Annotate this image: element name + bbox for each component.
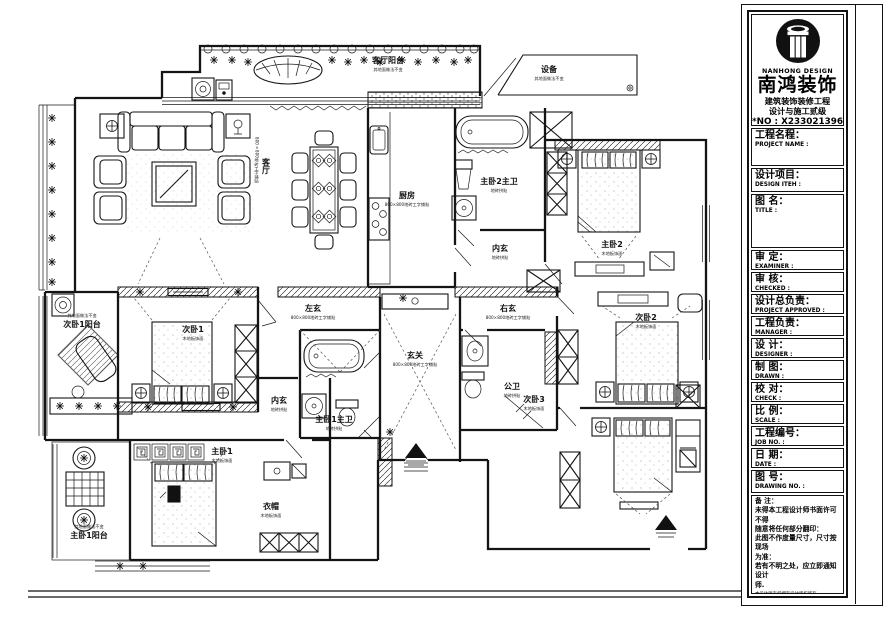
field-label-en: CHECK : (755, 396, 840, 402)
room-label-left-hall: 左玄 (304, 303, 321, 313)
remark-title: 备 注： (755, 497, 840, 506)
field-label-en: DESIGN ITEH : (755, 182, 840, 189)
room-sub: 其地面做法不变 (534, 75, 563, 82)
field-project-approved: 设计总负责： PROJECT APPROVED : (751, 294, 844, 314)
room-sub: 其地面做法不变 (74, 523, 103, 530)
room-sub: 800×800地砖工字铺贴 (393, 361, 438, 368)
field-job-no: 工程编号： JOB NO. : (751, 426, 844, 446)
field-label-zh: 设计项目： (755, 170, 840, 182)
room-sub: 其地面做法不变 (373, 66, 402, 73)
publicbath-fixtures (462, 336, 543, 428)
room-sub: 木地板饰面 (261, 512, 282, 519)
field-label-en: PROJECT NAME : (755, 142, 840, 149)
drawing-sheet: 客厅阳台 其地面做法不变 设备 其地面做法不变 厨房 800×800地砖工字铺贴… (0, 0, 895, 633)
kitchen-furniture (368, 112, 390, 284)
field-label-zh: 设 计： (755, 340, 840, 352)
field-examiner: 审 定： EXAMINER : (751, 250, 844, 270)
field-label-en: JOB NO. : (755, 440, 840, 446)
brand-cert-no: *NO : X233021396 (752, 117, 843, 126)
field-title: 图 名： TITLE : (751, 194, 844, 248)
sheet-border-lines (28, 591, 741, 597)
room-label-inner-hall-upper: 内玄 (492, 243, 508, 253)
field-date: 日 期： DATE : (751, 448, 844, 468)
field-designer: 设 计： DESIGNER : (751, 338, 844, 358)
field-label-zh: 审 核： (755, 274, 840, 286)
title-block: NANHONG DESIGN 南鸿装饰 建筑装饰装修工程 设计与施工贰级 *NO… (747, 10, 848, 598)
living-room-furniture (94, 112, 254, 296)
sight-lines (134, 236, 690, 514)
field-label-zh: 审 定： (755, 252, 840, 264)
field-label-en: CHECKED : (755, 286, 840, 292)
field-label-zh: 工程编号： (755, 428, 840, 440)
brand-cert-line2: 设计与施工贰级 (752, 106, 843, 116)
room-sub: 木地板饰面 (183, 335, 204, 342)
room-sub: 地砖拼贴 (271, 406, 288, 413)
field-manager: 工程负责： MANAGER : (751, 316, 844, 336)
room-sub: 800×800地砖工字铺贴 (291, 314, 336, 321)
field-label-en: PROJECT APPROVED : (755, 308, 840, 314)
room-label-masterbed1-balcony: 主卧1阳台 (70, 530, 108, 540)
room-label-bedroom2: 次卧2 (635, 312, 657, 322)
room-sub: 地砖拼贴 (492, 254, 509, 261)
field-label-zh: 比 例： (755, 406, 840, 418)
field-checked: 审 核： CHECKED : (751, 272, 844, 292)
masterbed2-furniture (558, 150, 674, 276)
room-label-kitchen: 厨房 (399, 190, 415, 200)
field-label-zh: 工程负责： (755, 318, 840, 330)
room-sub: 800×800地砖工字铺贴 (486, 314, 531, 321)
room-label-bedroom1-balcony: 次卧1阳台 (63, 319, 101, 329)
field-label-en: DATE : (755, 462, 840, 468)
room-sub: 800×800地砖工字铺贴 (385, 201, 430, 208)
field-label-zh: 图 名： (755, 196, 840, 208)
room-label-foyer: 玄关 (407, 350, 423, 360)
nanhong-logo-icon (775, 18, 821, 64)
room-sub: 地砖拼贴 (491, 187, 508, 194)
room-label-living: 客厅 (261, 157, 271, 175)
dining-furniture (292, 131, 356, 249)
field-label-en: EXAMINER : (755, 264, 840, 270)
brand-cert-line1: 建筑装饰装修工程 (752, 96, 843, 106)
room-sub: 其地面做法不变 (67, 312, 96, 319)
field-label-en: SCALE : (755, 418, 840, 424)
remark-line: 此图不作度量尺寸，尺寸按现场 (755, 534, 840, 553)
field-label-zh: 设计总负责： (755, 296, 840, 308)
field-drawn: 制 图： DRAWN : (751, 360, 844, 380)
room-sub: 木地板饰面 (636, 323, 657, 330)
field-label-en: MANAGER : (755, 330, 840, 336)
room-sub: 木地板饰面 (602, 250, 623, 257)
room-sub: 800×800地砖工字铺贴 (254, 137, 260, 185)
field-label-en: DRAWING NO. : (755, 484, 840, 491)
room-label-bedroom1: 次卧1 (182, 324, 204, 334)
remark-fine-print: 本设计师有权拥有设计版权所有 (755, 592, 840, 594)
room-label-masterbath2: 主卧2主卫 (480, 176, 518, 186)
field-label-zh: 校 对： (755, 384, 840, 396)
remark-line: 随意将任何部分翻印： (755, 525, 840, 534)
room-label-bedroom3: 次卧3 (523, 394, 545, 404)
doors (258, 230, 576, 460)
room-label-masterbed2: 主卧2 (601, 239, 623, 249)
field-design-item: 设计项目： DESIGN ITEH : (751, 168, 844, 192)
room-label-publicbath: 公卫 (504, 382, 520, 391)
remark-line: 师. (755, 581, 840, 590)
remark-line: 未得本工程设计师书面许可不得 (755, 506, 840, 525)
field-label-zh: 图 号： (755, 472, 840, 484)
plants (48, 56, 472, 570)
room-sub: 木地板饰面 (212, 457, 233, 464)
field-check: 校 对： CHECK : (751, 382, 844, 402)
room-sub: 地砖拼贴 (504, 392, 521, 399)
room-sub: 木地板饰面 (524, 405, 545, 412)
brand-section: NANHONG DESIGN 南鸿装饰 建筑装饰装修工程 设计与施工贰级 *NO… (751, 14, 844, 126)
field-label-en: DESIGNER : (755, 352, 840, 358)
brand-name-zh: 南鸿装饰 (752, 75, 843, 96)
field-label-zh: 制 图： (755, 362, 840, 374)
room-label-inner-hall-lower: 内玄 (271, 395, 287, 405)
bedroom3-furniture (592, 418, 672, 509)
room-label-right-hall: 右玄 (499, 303, 516, 313)
remark-line: 若有不明之处，应立即通知设计 (755, 562, 840, 581)
room-label-masterbed1: 主卧1 (211, 446, 233, 456)
floor-plan: 客厅阳台 其地面做法不变 设备 其地面做法不变 厨房 800×800地砖工字铺贴… (0, 0, 745, 633)
room-label-living-balcony: 客厅阳台 (371, 55, 404, 65)
field-label-zh: 工程名程： (755, 130, 840, 142)
field-project-name: 工程名程： PROJECT NAME : (751, 128, 844, 166)
field-drawing-no: 图 号： DRAWING NO. : (751, 470, 844, 493)
field-label-en: DRAWN : (755, 374, 840, 380)
room-label-equipment: 设备 (541, 64, 558, 74)
room-sub: 地砖拼贴 (326, 425, 343, 432)
remark-section: 备 注： 未得本工程设计师书面许可不得 随意将任何部分翻印： 此图不作度量尺寸，… (751, 495, 844, 594)
field-label-zh: 日 期： (755, 450, 840, 462)
title-panel-divider (855, 4, 856, 604)
room-label-masterbath1: 主卧1主卫 (315, 414, 353, 424)
remark-line: 为准： (755, 553, 840, 562)
field-label-en: TITLE : (755, 208, 840, 215)
walls (45, 46, 706, 560)
masterbath2-fixtures (452, 116, 528, 220)
room-label-cloakroom: 衣帽 (263, 501, 279, 511)
field-scale: 比 例： SCALE : (751, 404, 844, 424)
